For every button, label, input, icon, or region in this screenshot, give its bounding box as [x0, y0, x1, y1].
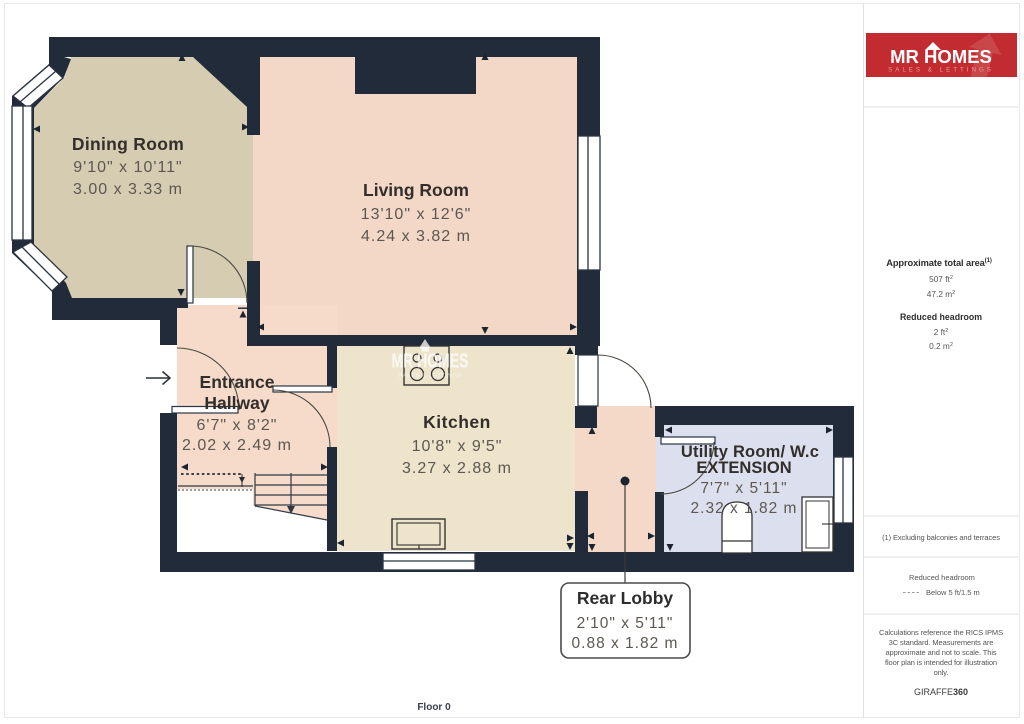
svg-text:0.88 x 1.82 m: 0.88 x 1.82 m [572, 635, 679, 652]
svg-text:MR HOMES: MR HOMES [392, 351, 469, 373]
svg-text:507 ft2: 507 ft2 [929, 274, 953, 284]
svg-text:SALES & LETTINGS: SALES & LETTINGS [398, 373, 462, 380]
svg-text:(1) Excluding balconies and te: (1) Excluding balconies and terraces [882, 533, 1000, 542]
svg-text:Rear Lobby: Rear Lobby [577, 588, 674, 608]
svg-text:2'10" x 5'11": 2'10" x 5'11" [577, 615, 674, 632]
svg-text:2.32 x 1.82 m: 2.32 x 1.82 m [691, 500, 798, 517]
svg-text:Living Room: Living Room [363, 180, 469, 200]
svg-text:2.02 x 2.49 m: 2.02 x 2.49 m [182, 437, 292, 454]
svg-text:GIRAFFE360: GIRAFFE360 [914, 687, 968, 697]
svg-text:Reduced headroom: Reduced headroom [909, 573, 975, 582]
svg-text:7'7" x 5'11": 7'7" x 5'11" [700, 480, 787, 497]
svg-text:SALES & LETTINGS: SALES & LETTINGS [888, 67, 994, 74]
svg-text:6'7" x 8'2": 6'7" x 8'2" [197, 417, 278, 434]
svg-text:9'10" x 10'11": 9'10" x 10'11" [73, 159, 182, 176]
svg-text:3C standard. Measurements are: 3C standard. Measurements are [889, 638, 994, 647]
svg-text:Floor 0: Floor 0 [417, 702, 451, 713]
svg-text:3.00 x 3.33 m: 3.00 x 3.33 m [73, 181, 183, 198]
svg-text:Calculations reference the RIC: Calculations reference the RICS IPMS [879, 628, 1003, 637]
svg-text:47.2 m2: 47.2 m2 [927, 289, 955, 299]
svg-text:EXTENSION: EXTENSION [696, 459, 791, 477]
svg-text:approximate and not to scale.: approximate and not to scale. This [885, 648, 996, 657]
svg-text:10'8" x 9'5": 10'8" x 9'5" [412, 438, 503, 455]
svg-text:Entrance: Entrance [200, 372, 275, 392]
svg-text:3.27 x 2.88 m: 3.27 x 2.88 m [402, 460, 512, 477]
svg-text:only.: only. [934, 668, 949, 677]
svg-text:floor plan is intended for ill: floor plan is intended for illustration [885, 658, 997, 667]
svg-text:Below 5 ft/1.5 m: Below 5 ft/1.5 m [926, 588, 980, 597]
svg-text:13'10" x 12'6": 13'10" x 12'6" [361, 206, 472, 223]
svg-text:4.24 x 3.82 m: 4.24 x 3.82 m [361, 228, 471, 245]
svg-text:2 ft2: 2 ft2 [934, 327, 949, 337]
svg-text:Reduced headroom: Reduced headroom [900, 312, 982, 322]
svg-text:Kitchen: Kitchen [423, 412, 491, 432]
svg-text:MR HOMES: MR HOMES [890, 46, 992, 67]
svg-text:0.2 m2: 0.2 m2 [929, 341, 953, 351]
svg-text:Approximate total area(1): Approximate total area(1) [886, 258, 992, 268]
svg-text:Dining Room: Dining Room [72, 134, 184, 154]
svg-text:Hallway: Hallway [204, 393, 269, 413]
